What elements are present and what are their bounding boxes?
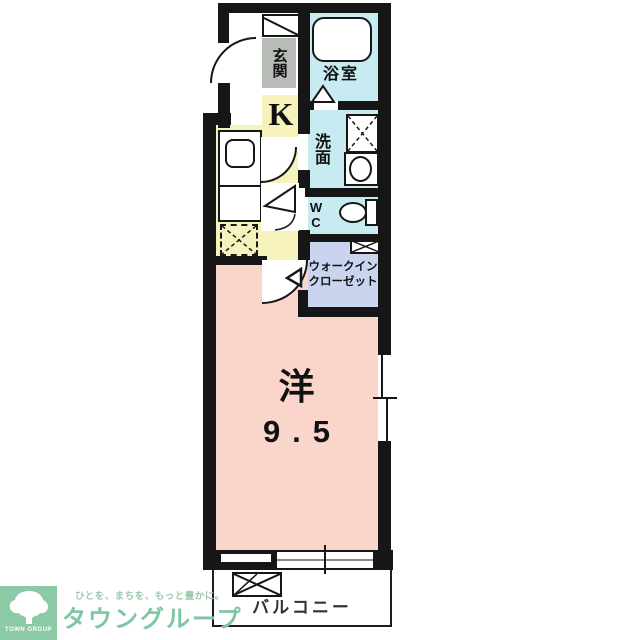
kitchen-counter xyxy=(218,130,262,222)
shoe-cabinet xyxy=(262,14,300,37)
wash-basin-bowl xyxy=(349,156,372,182)
entrance-door-arc xyxy=(210,37,256,83)
main-room-size: 9.5 xyxy=(215,410,378,454)
bathroom-door-symbol xyxy=(310,84,336,104)
main-room-label: 洋 xyxy=(215,360,378,408)
washing-machine-box xyxy=(346,114,379,153)
window-pane-line xyxy=(386,397,388,441)
bottom-wall-window-slit xyxy=(221,554,271,562)
closet-door-symbol xyxy=(285,267,303,288)
bathroom-label: 浴室 xyxy=(308,60,374,84)
closet-label-line1: ウォークイン xyxy=(308,260,378,275)
town-group-tree-icon xyxy=(8,590,50,626)
wall-bath-washroom-b xyxy=(338,101,391,110)
refrigerator-space xyxy=(220,224,258,256)
town-group-logo-text: TOWN GROUP xyxy=(5,627,52,633)
toilet-tank xyxy=(365,199,378,226)
logo-name: タウングループ xyxy=(62,599,243,634)
balcony-door-tick xyxy=(324,545,326,574)
wc-label: WC xyxy=(306,196,326,234)
closet-label-line2: クローゼット xyxy=(308,275,378,290)
town-group-logo: TOWN GROUP xyxy=(0,586,57,640)
genkan-label: 玄関 xyxy=(262,38,296,88)
bathtub xyxy=(312,17,372,62)
wash-basin xyxy=(344,152,379,186)
toilet-bowl xyxy=(339,202,367,223)
wall-left-top xyxy=(218,3,229,43)
closet-label: ウォークイン クローゼット xyxy=(308,260,378,302)
wall-corridor-room xyxy=(203,256,267,265)
kitchen-sink xyxy=(225,139,255,168)
wall-right-lower xyxy=(378,441,391,556)
wall-closet-bottom xyxy=(298,307,391,317)
wall-right-upper xyxy=(378,3,391,355)
kitchen-label: K xyxy=(262,92,300,136)
washroom-label: 洗面 xyxy=(309,112,331,186)
wc-door-symbol xyxy=(261,183,299,231)
wall-closet-left-a xyxy=(298,242,308,262)
window-pane-line xyxy=(381,355,383,399)
floorplan-page: 玄関 浴室 K 洗面 WC ウォークイン クローゼット 洋 9.5 バルコニー … xyxy=(0,0,640,640)
wall-left-main xyxy=(203,113,216,570)
wall-wc-closet xyxy=(298,234,391,242)
